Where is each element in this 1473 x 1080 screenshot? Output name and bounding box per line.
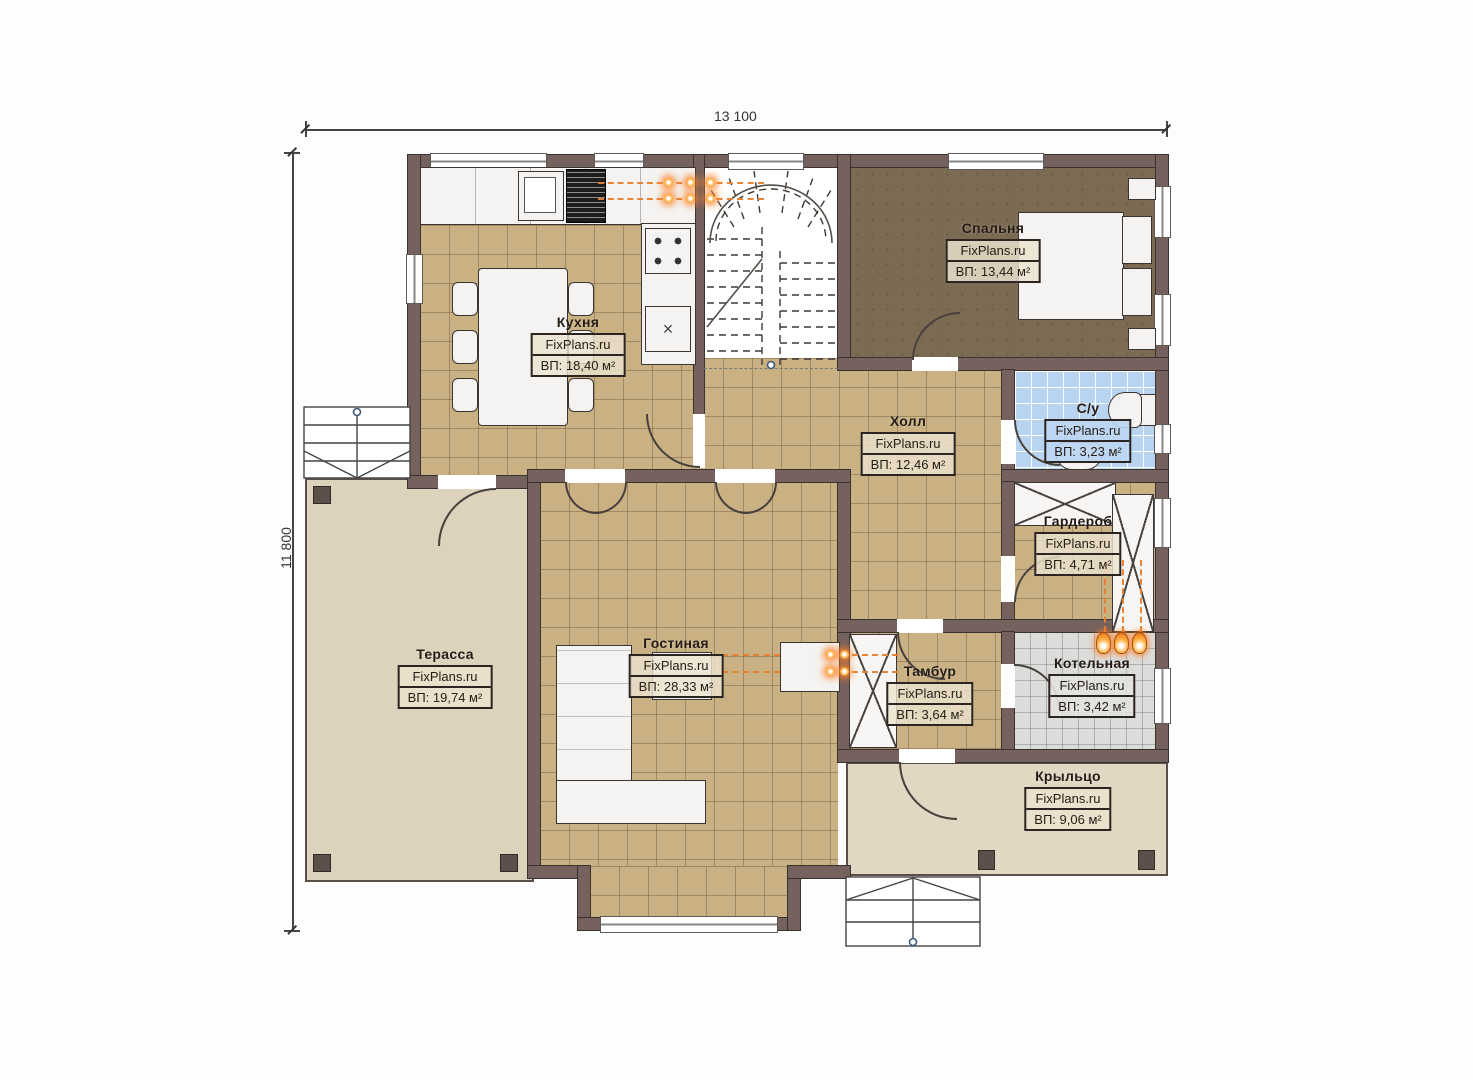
- watermark-box: FixPlans.ru ВП: 18,40 м²: [531, 333, 626, 377]
- room-label-bathroom: С/у FixPlans.ru ВП: 3,23 м²: [1044, 400, 1131, 463]
- door-opening: [1001, 420, 1015, 464]
- watermark-text: FixPlans.ru: [533, 335, 624, 354]
- watermark-box: FixPlans.ru ВП: 19,74 м²: [398, 665, 493, 709]
- heater-line-living: [722, 654, 780, 656]
- watermark-text: FixPlans.ru: [863, 434, 954, 453]
- window-bedroom-right-2: [1154, 294, 1171, 346]
- bed-pillow: [1122, 216, 1152, 264]
- watermark-text: FixPlans.ru: [400, 667, 491, 686]
- room-name: Кухня: [531, 314, 626, 330]
- watermark-box: FixPlans.ru ВП: 3,42 м²: [1048, 674, 1135, 718]
- door-opening: [438, 475, 496, 489]
- watermark-box: FixPlans.ru ВП: 3,64 м²: [886, 682, 973, 726]
- room-name: Крыльцо: [1024, 768, 1111, 784]
- dining-chair: [452, 282, 478, 316]
- living-bay-floor: [590, 866, 788, 918]
- room-name: Гардероб: [1034, 513, 1121, 529]
- heater-glow-icon: [826, 667, 835, 676]
- room-area: ВП: 28,33 м²: [631, 675, 722, 696]
- door-opening: [1001, 556, 1015, 602]
- room-name: Терасса: [398, 646, 493, 662]
- radiator-glow-icon: [686, 178, 695, 187]
- porch-post: [978, 850, 995, 870]
- window-bedroom-top: [948, 153, 1044, 170]
- room-name: Гостиная: [629, 635, 724, 651]
- kitchen-sink-basin: [524, 177, 556, 213]
- terrace-steps: [303, 406, 411, 480]
- stove: [645, 228, 691, 274]
- wall-bedroom-south: [838, 358, 1168, 370]
- cross-symbol: ×: [663, 319, 674, 340]
- room-name: Тамбур: [886, 663, 973, 679]
- terrace-post: [500, 854, 518, 872]
- radiator-glow-icon: [686, 194, 695, 203]
- watermark-text: FixPlans.ru: [888, 684, 971, 703]
- door-opening: [1001, 664, 1015, 708]
- room-area: ВП: 19,74 м²: [400, 686, 491, 707]
- room-label-boiler: Котельная FixPlans.ru ВП: 3,42 м²: [1048, 655, 1135, 718]
- heater-line-living: [722, 671, 780, 673]
- terrace-post: [313, 854, 331, 872]
- window-bathroom-right: [1154, 424, 1171, 454]
- door-opening: [899, 749, 955, 763]
- watermark-box: FixPlans.ru ВП: 4,71 м²: [1034, 532, 1121, 576]
- burner-flame-icon: [1096, 632, 1111, 654]
- heater-glow-icon: [826, 650, 835, 659]
- dining-chair: [568, 282, 594, 316]
- heater-glow-icon: [840, 650, 849, 659]
- heater-line-vestibule: [852, 654, 898, 656]
- terrace-post: [313, 486, 331, 504]
- wall-house-south: [838, 750, 1168, 762]
- porch-post: [1138, 850, 1155, 870]
- wall-bathroom-south: [1002, 470, 1168, 482]
- room-label-porch: Крыльцо FixPlans.ru ВП: 9,06 м²: [1024, 768, 1111, 831]
- nightstand: [1128, 178, 1156, 200]
- dimension-width-line: [305, 129, 1168, 131]
- dimension-height-line: [292, 152, 294, 932]
- radiator-glow-icon: [664, 194, 673, 203]
- wall-bedroom-west: [838, 155, 850, 370]
- burner-flame-icon: [1132, 632, 1147, 654]
- door-opening: [565, 469, 625, 483]
- microwave-box: ×: [645, 306, 691, 352]
- room-label-vestibule: Тамбур FixPlans.ru ВП: 3,64 м²: [886, 663, 973, 726]
- dining-chair: [452, 378, 478, 412]
- wall-living-south-right: [788, 866, 850, 878]
- watermark-text: FixPlans.ru: [1046, 421, 1129, 440]
- floor-plan: 13 100 11 800: [0, 0, 1473, 1080]
- sofa-vertical: [556, 645, 632, 783]
- bed-pillow: [1122, 268, 1152, 316]
- window-boiler-right: [1154, 668, 1171, 724]
- watermark-box: FixPlans.ru ВП: 13,44 м²: [946, 239, 1041, 283]
- room-label-kitchen: Кухня FixPlans.ru ВП: 18,40 м²: [531, 314, 626, 377]
- watermark-text: FixPlans.ru: [1026, 789, 1109, 808]
- room-area: ВП: 4,71 м²: [1036, 553, 1119, 574]
- room-label-terrace: Терасса FixPlans.ru ВП: 19,74 м²: [398, 646, 493, 709]
- room-area: ВП: 3,23 м²: [1046, 440, 1129, 461]
- room-name: Холл: [861, 413, 956, 429]
- room-area: ВП: 13,44 м²: [948, 260, 1039, 281]
- radiator-glow-icon: [664, 178, 673, 187]
- watermark-text: FixPlans.ru: [631, 656, 722, 675]
- room-name: Спальня: [946, 220, 1041, 236]
- watermark-text: FixPlans.ru: [948, 241, 1039, 260]
- window-bay: [600, 916, 778, 933]
- room-label-hall: Холл FixPlans.ru ВП: 12,46 м²: [861, 413, 956, 476]
- room-area: ВП: 3,64 м²: [888, 703, 971, 724]
- radiator-glow-icon: [706, 178, 715, 187]
- porch-steps: [845, 876, 981, 948]
- door-opening: [715, 469, 775, 483]
- radiator-kitchen-line: [598, 182, 692, 184]
- burner-flame-icon: [1114, 632, 1129, 654]
- room-area: ВП: 9,06 м²: [1026, 808, 1109, 829]
- window-wardrobe-right: [1154, 498, 1171, 548]
- room-label-wardrobe: Гардероб FixPlans.ru ВП: 4,71 м²: [1034, 513, 1121, 576]
- porch-floor: [846, 762, 1168, 876]
- watermark-box: FixPlans.ru ВП: 9,06 м²: [1024, 787, 1111, 831]
- watermark-box: FixPlans.ru ВП: 3,23 м²: [1044, 419, 1131, 463]
- watermark-box: FixPlans.ru ВП: 28,33 м²: [629, 654, 724, 698]
- dimension-width-label: 13 100: [714, 108, 757, 124]
- radiator-kitchen-line: [598, 198, 692, 200]
- kitchen-appliance: [566, 169, 606, 223]
- room-name: Котельная: [1048, 655, 1135, 671]
- boiler-pipe-line: [1122, 560, 1124, 632]
- heater-glow-icon: [840, 667, 849, 676]
- nightstand: [1128, 328, 1156, 350]
- room-area: ВП: 12,46 м²: [863, 453, 954, 474]
- dining-chair: [452, 330, 478, 364]
- window-kitchen-left: [406, 254, 423, 304]
- dining-chair: [568, 378, 594, 412]
- room-area: ВП: 3,42 м²: [1050, 695, 1133, 716]
- window-bedroom-right-1: [1154, 186, 1171, 238]
- room-area: ВП: 18,40 м²: [533, 354, 624, 375]
- room-label-living: Гостиная FixPlans.ru ВП: 28,33 м²: [629, 635, 724, 698]
- watermark-box: FixPlans.ru ВП: 12,46 м²: [861, 432, 956, 476]
- boiler-pipe-line: [1140, 560, 1142, 632]
- door-opening: [897, 619, 943, 633]
- radiator-glow-icon: [706, 194, 715, 203]
- room-label-bedroom: Спальня FixPlans.ru ВП: 13,44 м²: [946, 220, 1041, 283]
- watermark-text: FixPlans.ru: [1036, 534, 1119, 553]
- watermark-text: FixPlans.ru: [1050, 676, 1133, 695]
- wall-living-west: [528, 476, 540, 878]
- room-name: С/у: [1044, 400, 1131, 416]
- sofa-horizontal: [556, 780, 706, 824]
